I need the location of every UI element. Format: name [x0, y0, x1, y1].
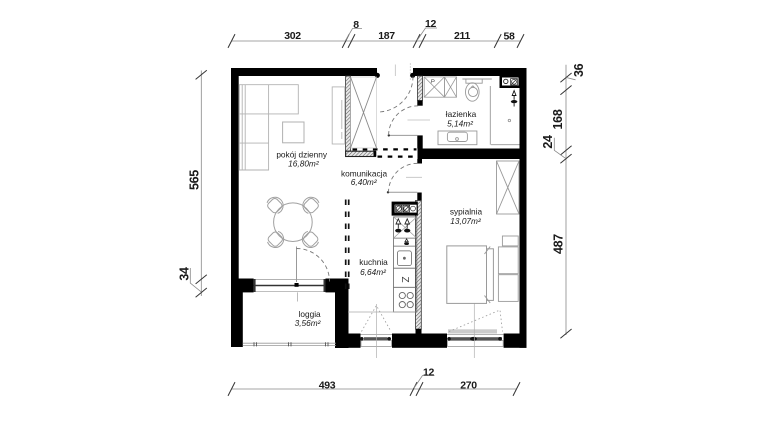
svg-text:34: 34 — [178, 267, 192, 281]
svg-text:187: 187 — [378, 30, 395, 42]
svg-text:270: 270 — [460, 380, 477, 392]
svg-text:8: 8 — [353, 19, 359, 31]
svg-text:Z: Z — [399, 277, 410, 283]
svg-text:24: 24 — [541, 135, 555, 149]
svg-text:6,64m²: 6,64m² — [360, 267, 386, 277]
svg-text:3,56m²: 3,56m² — [295, 318, 321, 328]
svg-text:kuchnia: kuchnia — [359, 257, 388, 267]
svg-text:565: 565 — [188, 170, 202, 190]
svg-text:211: 211 — [454, 30, 470, 42]
svg-text:6,40m²: 6,40m² — [351, 177, 377, 187]
svg-text:302: 302 — [284, 30, 301, 42]
svg-text:łazienka: łazienka — [446, 109, 477, 119]
svg-text:12: 12 — [423, 367, 435, 379]
svg-text:168: 168 — [551, 109, 565, 129]
svg-text:493: 493 — [319, 380, 336, 392]
svg-text:36: 36 — [572, 63, 586, 77]
svg-text:16,80m²: 16,80m² — [288, 158, 319, 168]
svg-text:487: 487 — [551, 234, 565, 254]
svg-text:5,14m²: 5,14m² — [447, 119, 473, 129]
svg-text:58: 58 — [503, 31, 515, 43]
svg-text:13,07m²: 13,07m² — [450, 216, 481, 226]
svg-text:12: 12 — [425, 18, 437, 30]
